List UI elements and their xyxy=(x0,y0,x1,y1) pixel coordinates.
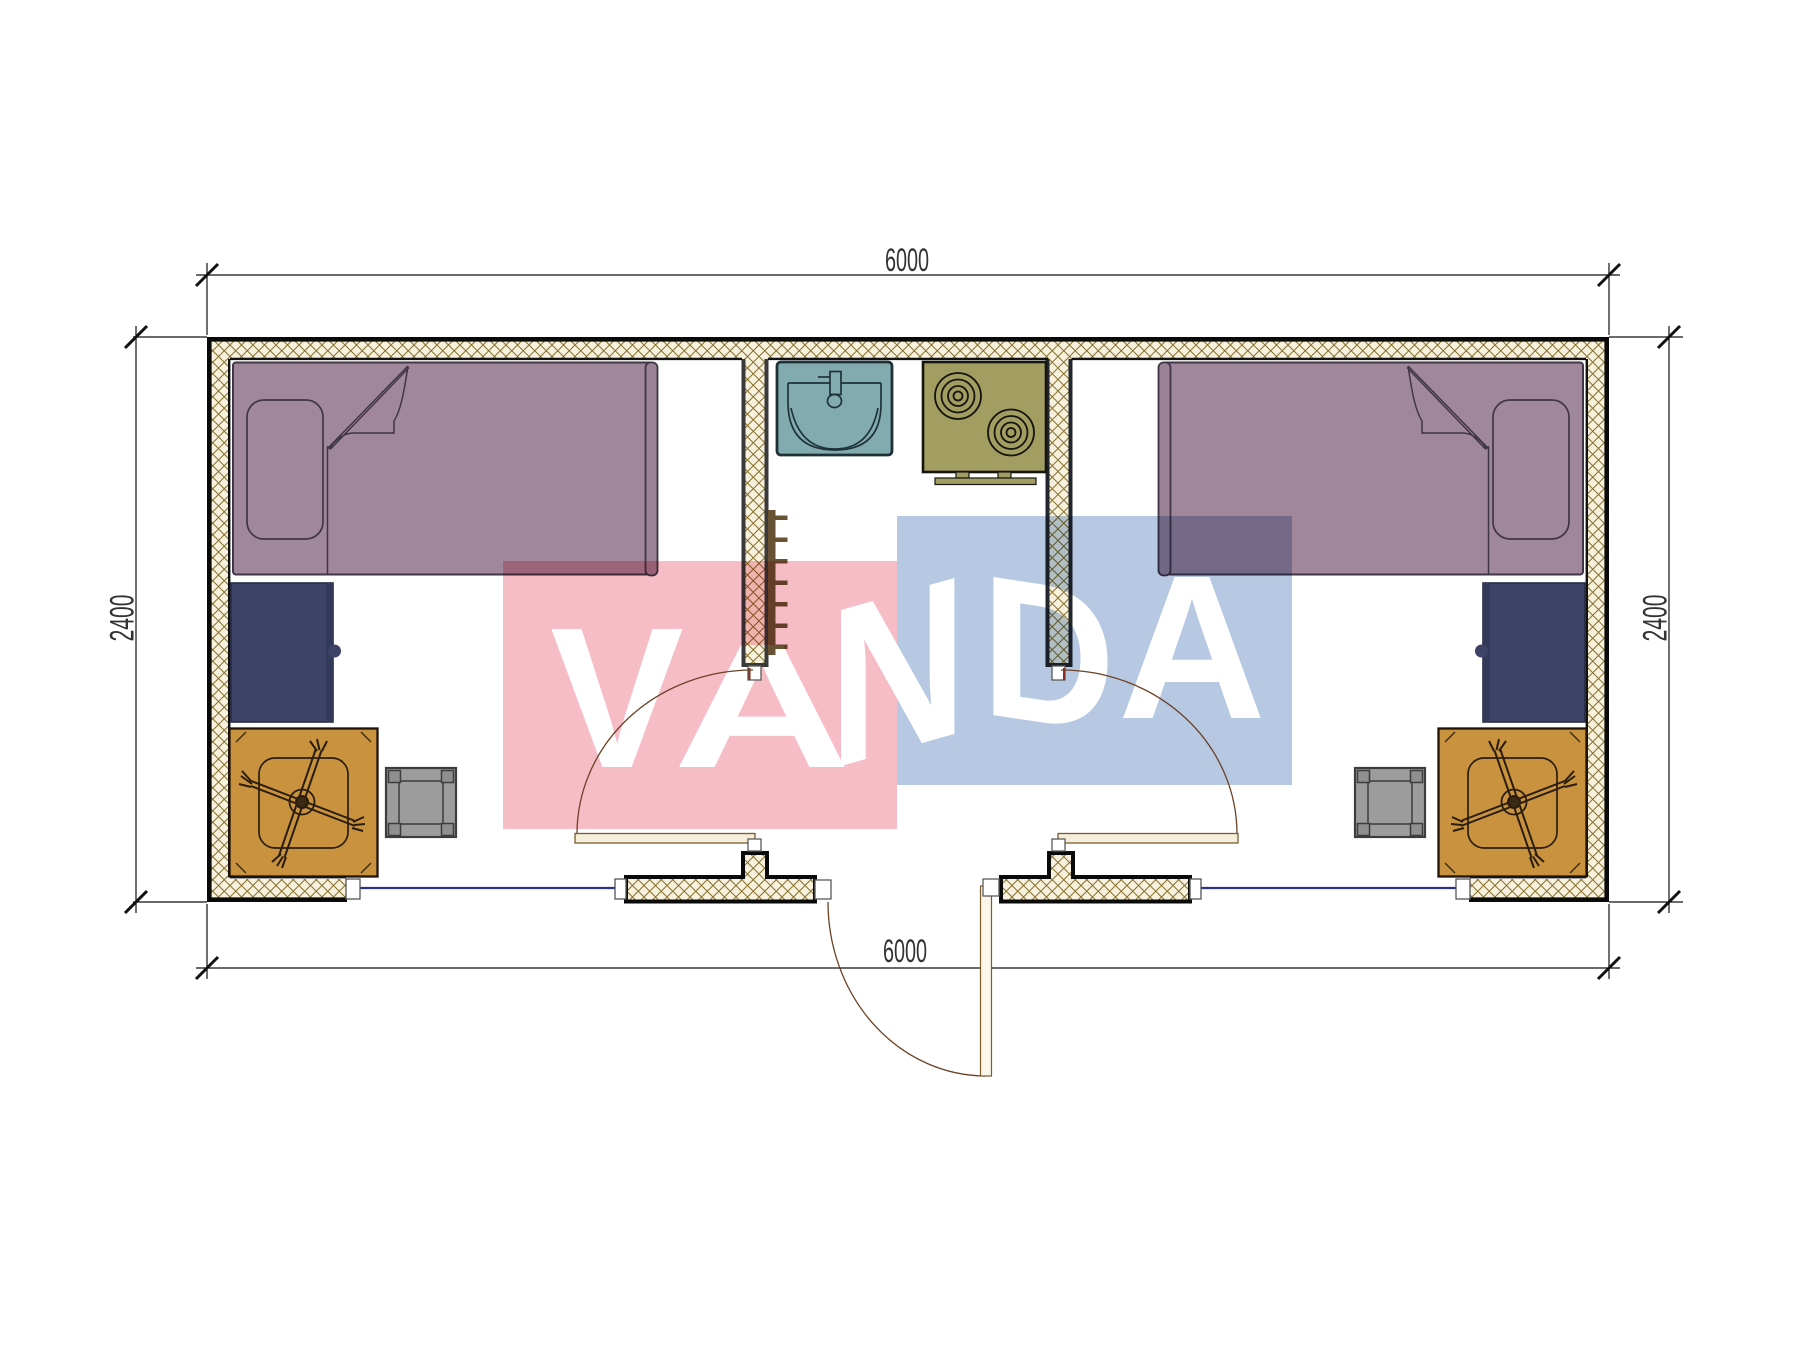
svg-text:N: N xyxy=(828,526,967,819)
svg-text:A: A xyxy=(1118,533,1266,762)
svg-text:6000: 6000 xyxy=(885,242,929,278)
svg-text:V: V xyxy=(550,585,684,810)
svg-text:D: D xyxy=(981,533,1115,777)
svg-text:2400: 2400 xyxy=(102,595,140,642)
svg-text:A: A xyxy=(673,608,851,805)
svg-text:6000: 6000 xyxy=(883,933,927,969)
svg-text:2400: 2400 xyxy=(1635,595,1673,642)
